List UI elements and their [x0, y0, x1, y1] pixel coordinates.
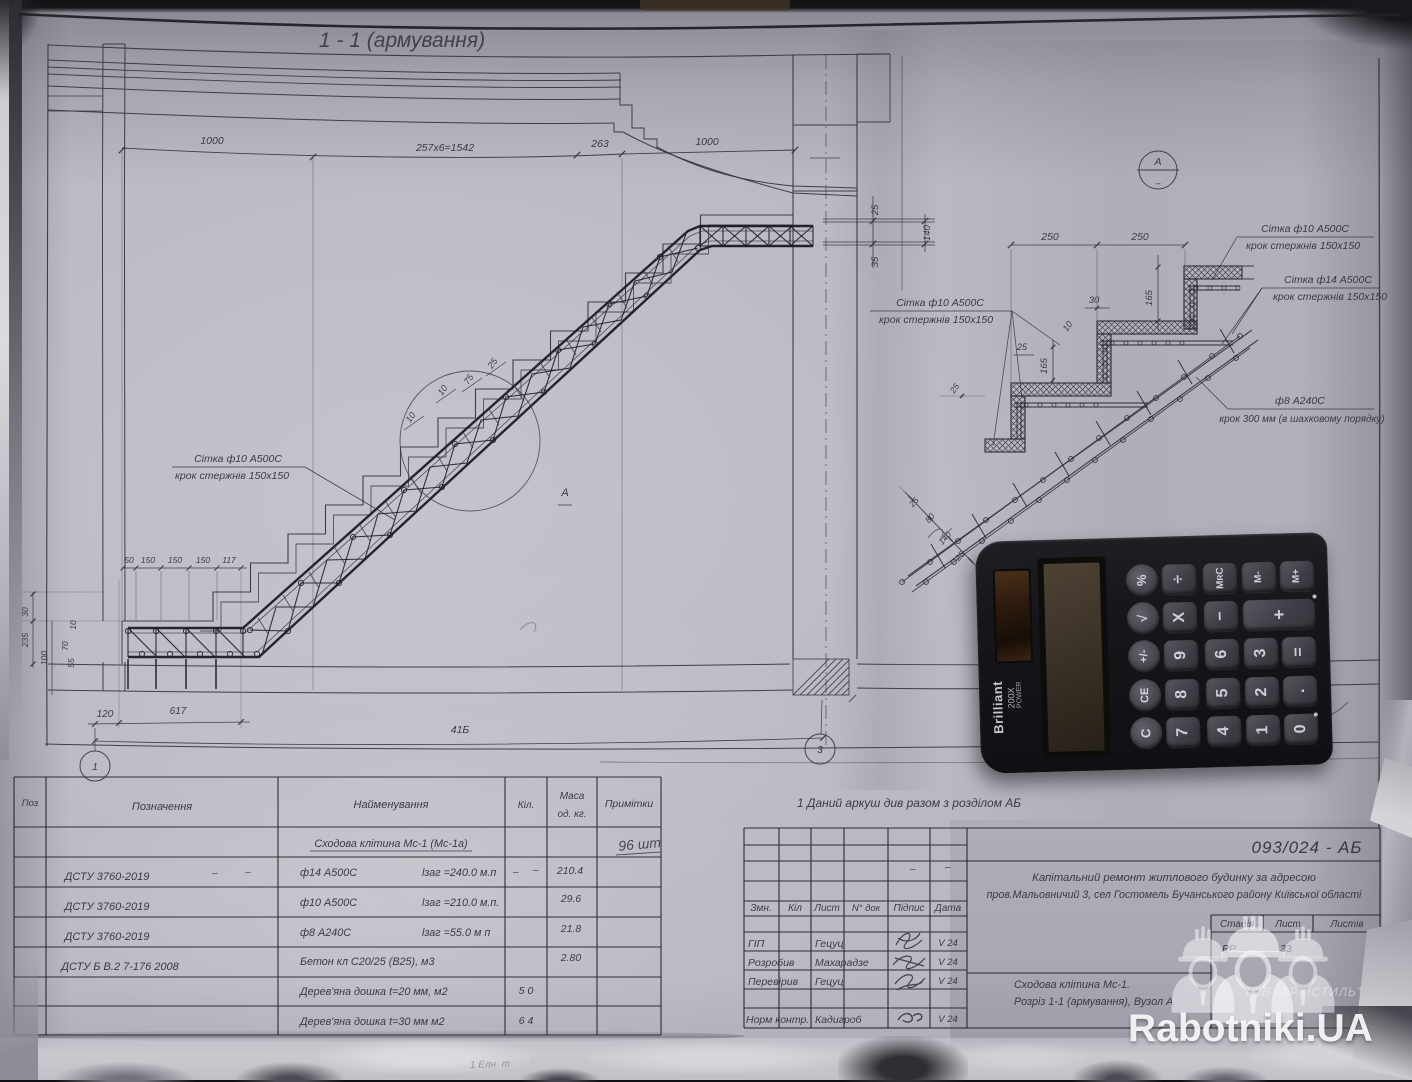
svg-text:150: 150 — [196, 555, 210, 565]
svg-text:5 0: 5 0 — [519, 985, 534, 997]
svg-text:Сітка ф14 А500С: Сітка ф14 А500С — [1284, 274, 1372, 286]
svg-text:1 Даний аркуш див разом з ро: 1 Даний аркуш див разом з розділом АБ — [797, 796, 1021, 810]
svg-text:Кіл: Кіл — [788, 903, 802, 914]
svg-text:ф10 А500С: ф10 А500С — [300, 897, 357, 909]
svg-text:Розробив: Розробив — [748, 957, 795, 969]
svg-text:100: 100 — [39, 651, 49, 665]
svg-text:25: 25 — [947, 381, 961, 396]
svg-text:Перевірив: Перевірив — [748, 976, 799, 988]
svg-text:1 - 1 (армування): 1 - 1 (армування) — [319, 29, 485, 52]
svg-text:Гецуц: Гецуц — [815, 938, 843, 950]
svg-text:Сітка ф10 А500С: Сітка ф10 А500С — [896, 297, 984, 309]
svg-text:3: 3 — [817, 745, 823, 756]
svg-text:25: 25 — [485, 355, 500, 371]
svg-text:крок стержнів 150х150: крок стержнів 150х150 — [879, 314, 993, 326]
svg-text:263: 263 — [590, 138, 609, 150]
svg-text:10: 10 — [68, 620, 78, 630]
svg-text:120: 120 — [97, 709, 114, 720]
svg-text:10: 10 — [1061, 319, 1075, 333]
svg-text:Сітка ф10 А500С: Сітка ф10 А500С — [194, 453, 282, 465]
svg-text:N° док: N° док — [852, 903, 881, 914]
svg-text:150: 150 — [168, 555, 182, 565]
svg-text:–: – — [244, 867, 251, 878]
svg-text:617: 617 — [170, 706, 187, 717]
svg-text:96 шт: 96 шт — [618, 834, 662, 854]
svg-text:Норм контр.: Норм контр. — [746, 1014, 809, 1026]
svg-text:–: – — [909, 864, 916, 875]
svg-text:70: 70 — [60, 641, 70, 651]
svg-text:25: 25 — [906, 495, 921, 510]
svg-text:1: 1 — [92, 762, 98, 773]
svg-text:235: 235 — [20, 633, 30, 648]
svg-text:Підпис: Підпис — [893, 903, 924, 914]
svg-text:35: 35 — [870, 256, 881, 267]
svg-text:–: – — [512, 867, 519, 878]
svg-text:крок стержнів 150х150: крок стержнів 150х150 — [175, 470, 289, 482]
svg-text:ДСТУ Б В.2 7-176 2008: ДСТУ Б В.2 7-176 2008 — [59, 961, 179, 973]
svg-text:–: – — [532, 865, 539, 876]
svg-text:55: 55 — [66, 658, 76, 668]
svg-text:117: 117 — [222, 555, 236, 565]
svg-text:25: 25 — [870, 204, 881, 216]
svg-text:–: – — [211, 868, 218, 879]
svg-text:140: 140 — [936, 529, 953, 546]
svg-text:крок стержнів 150х150: крок стержнів 150х150 — [1273, 291, 1387, 303]
svg-text:140: 140 — [922, 224, 933, 241]
svg-text:Сходова клітина Мс-1 (Мс-1а): Сходова клітина Мс-1 (Мс-1а) — [314, 838, 467, 850]
svg-text:lзаг =240.0 м.п: lзаг =240.0 м.п — [422, 867, 496, 879]
svg-text:Змн.: Змн. — [750, 903, 771, 914]
svg-text:ТОВ "АРХІСТИЛЬ": ТОВ "АРХІСТИЛЬ" — [1244, 985, 1362, 999]
svg-text:А: А — [560, 487, 568, 499]
svg-text:30: 30 — [20, 607, 30, 617]
svg-text:lзаг =55.0 м п: lзаг =55.0 м п — [422, 927, 490, 939]
svg-text:250: 250 — [1130, 231, 1149, 243]
svg-text:ДСТУ 3760-2019: ДСТУ 3760-2019 — [63, 871, 150, 883]
svg-text:50: 50 — [124, 555, 134, 565]
svg-text:ф8 А240С: ф8 А240С — [300, 927, 351, 939]
svg-text:Махарадзе: Махарадзе — [815, 957, 869, 969]
svg-text:ф14 А500С: ф14 А500С — [300, 867, 357, 879]
svg-text:210.4: 210.4 — [556, 865, 583, 877]
svg-text:Капітальний ремонт житлового б: Капітальний ремонт житлового будинку за … — [1032, 872, 1316, 884]
svg-text:V 24: V 24 — [938, 1014, 958, 1025]
svg-text:ДСТУ 3760-2019: ДСТУ 3760-2019 — [63, 931, 150, 943]
svg-text:257х6=1542: 257х6=1542 — [415, 142, 474, 154]
svg-text:Поз: Поз — [22, 798, 39, 809]
svg-text:165: 165 — [1144, 289, 1155, 306]
svg-text:25: 25 — [1016, 342, 1028, 352]
svg-text:крок 300 мм (в шахковому поряд: крок 300 мм (в шахковому порядку) — [1219, 414, 1384, 425]
svg-text:Лист: Лист — [813, 903, 840, 914]
svg-text:Гецуц: Гецуц — [815, 976, 843, 988]
svg-text:V 24: V 24 — [938, 957, 958, 968]
svg-text:пров.Мальовничий 3, сел Госто: пров.Мальовничий 3, сел Гостомель Бучанс… — [987, 889, 1362, 901]
svg-text:Маса: Маса — [560, 791, 585, 802]
svg-text:165: 165 — [1039, 357, 1050, 374]
svg-text:–: – — [944, 862, 951, 873]
svg-text:од. кг.: од. кг. — [557, 809, 586, 820]
svg-text:Дата: Дата — [934, 903, 962, 914]
svg-text:250: 250 — [1040, 231, 1059, 243]
svg-text:–: – — [1154, 178, 1161, 188]
svg-text:2.80: 2.80 — [560, 952, 582, 964]
svg-text:lзаг =210.0 м.п.: lзаг =210.0 м.п. — [422, 897, 499, 909]
svg-text:30: 30 — [1089, 295, 1100, 306]
svg-text:крок стержнів 150х150: крок стержнів 150х150 — [1246, 240, 1360, 252]
svg-text:093/024 - АБ: 093/024 - АБ — [1252, 838, 1363, 857]
svg-text:6 4: 6 4 — [519, 1015, 534, 1027]
svg-text:ГІП: ГІП — [748, 938, 765, 950]
svg-text:150: 150 — [141, 555, 155, 565]
svg-text:Сітка ф10 А500С: Сітка ф10 А500С — [1261, 223, 1349, 235]
svg-text:29.6: 29.6 — [560, 893, 582, 905]
svg-text:Кадигроб: Кадигроб — [815, 1014, 863, 1026]
svg-text:Дерев'яна дошка t=20 мм, м2: Дерев'яна дошка t=20 мм, м2 — [299, 986, 448, 998]
svg-text:ДСТУ 3760-2019: ДСТУ 3760-2019 — [63, 901, 150, 913]
svg-text:21.8: 21.8 — [560, 923, 582, 935]
svg-text:41Б: 41Б — [451, 724, 470, 736]
svg-text:А: А — [1153, 156, 1161, 168]
svg-text:1000: 1000 — [200, 135, 224, 147]
svg-text:Найменування: Найменування — [354, 799, 429, 811]
svg-text:1000: 1000 — [695, 136, 719, 148]
svg-text:Дерев'яна дошка t=30 мм м2: Дерев'яна дошка t=30 мм м2 — [299, 1016, 445, 1028]
svg-text:Примітки: Примітки — [605, 798, 654, 810]
svg-text:Сходова клітина Мс-1.: Сходова клітина Мс-1. — [1014, 979, 1130, 991]
svg-text:Позначення: Позначення — [132, 801, 192, 813]
svg-text:V 24: V 24 — [938, 938, 958, 949]
svg-text:Кіл.: Кіл. — [518, 800, 535, 811]
svg-text:V 24: V 24 — [938, 976, 958, 987]
svg-text:ф8 А240С: ф8 А240С — [1275, 395, 1325, 407]
svg-text:Бетон кл С20/25 (В25), м3: Бетон кл С20/25 (В25), м3 — [300, 956, 435, 968]
